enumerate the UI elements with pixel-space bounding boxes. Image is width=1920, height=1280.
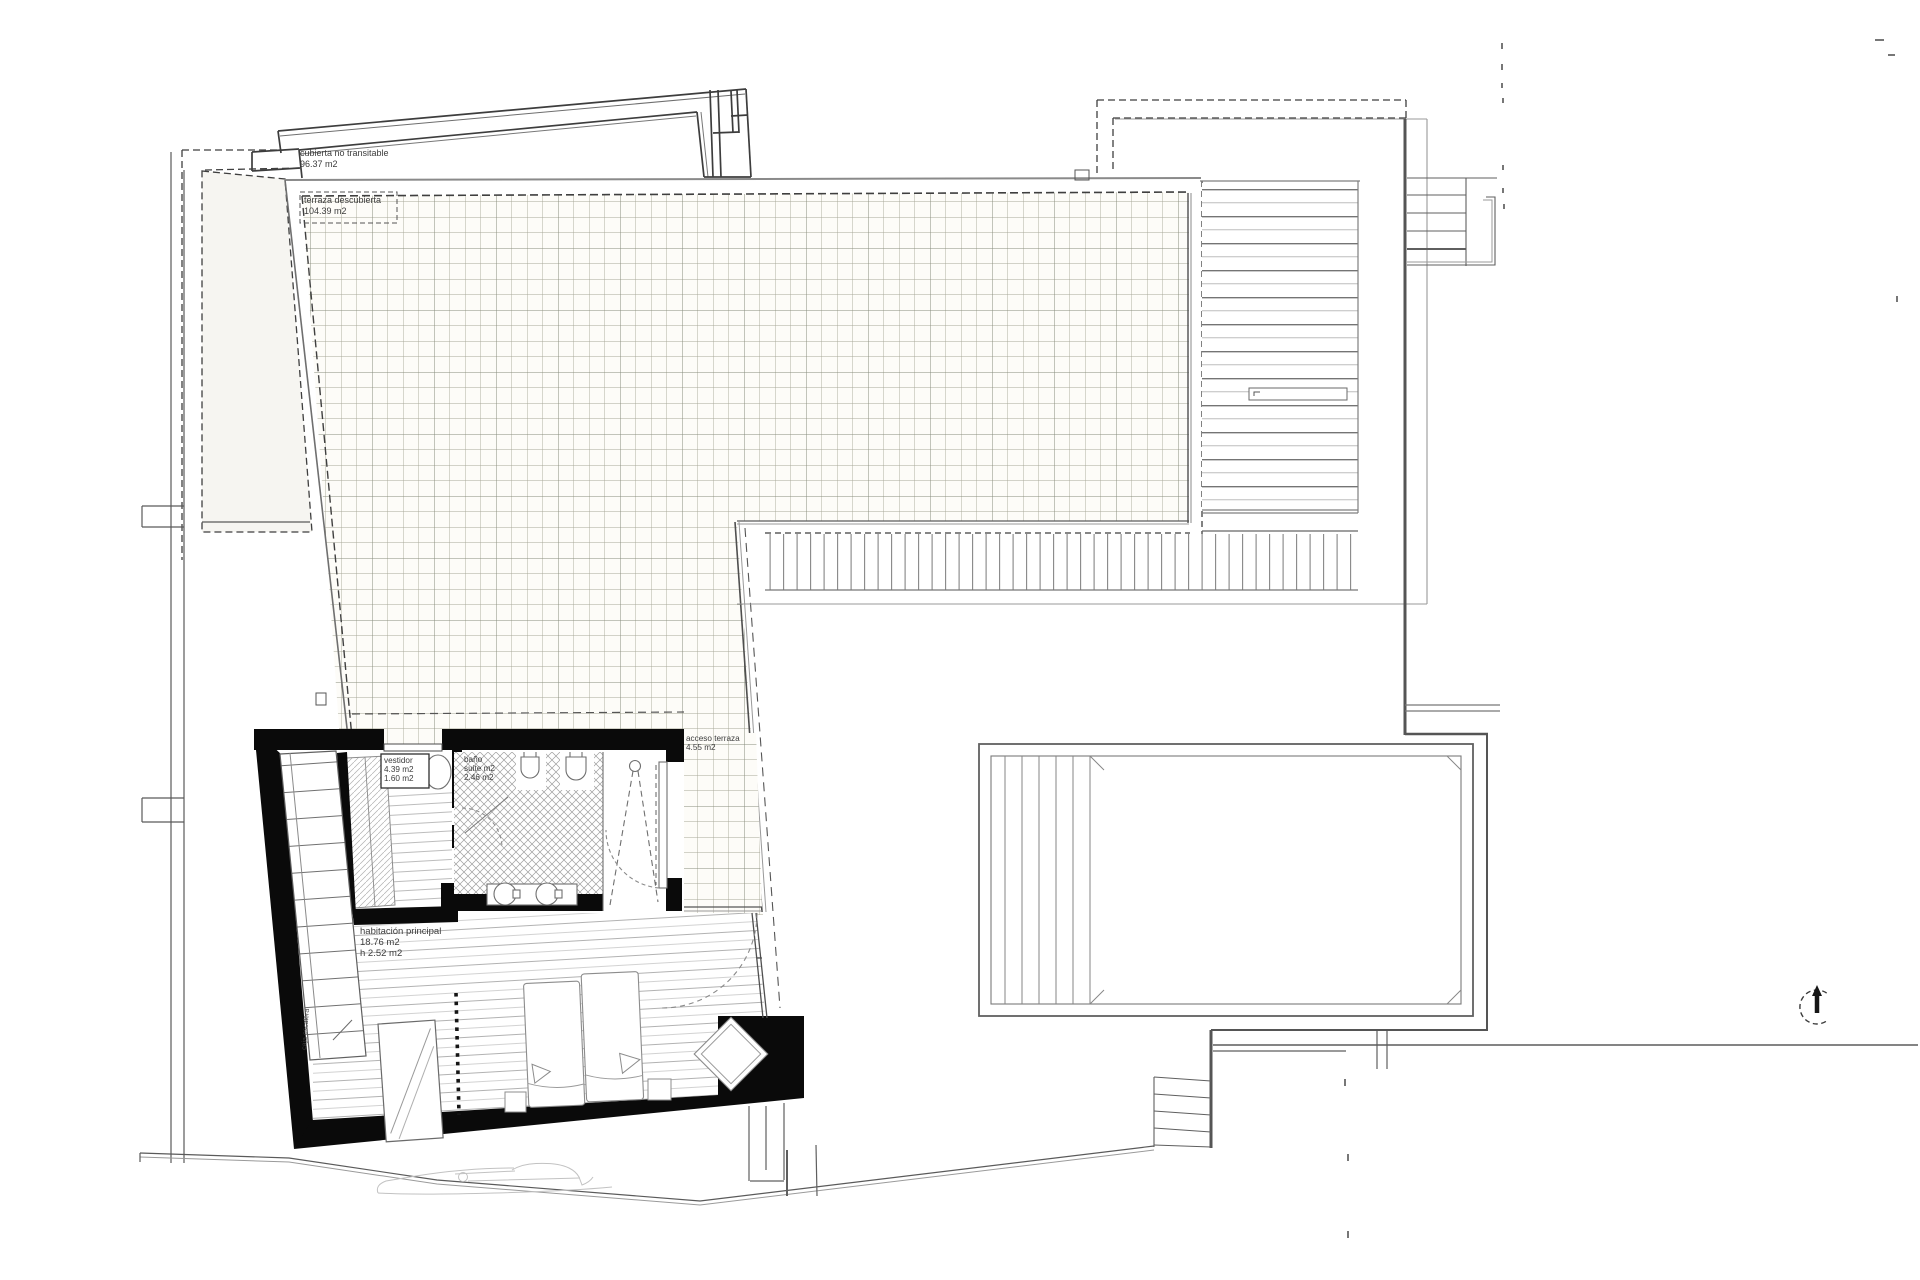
svg-text:4.55 m2: 4.55 m2 — [686, 743, 716, 752]
svg-text:104.39 m2: 104.39 m2 — [304, 206, 347, 216]
svg-text:suite m2: suite m2 — [464, 764, 495, 773]
svg-text:cubierta no transitable: cubierta no transitable — [300, 148, 389, 158]
svg-text:2.46 m2: 2.46 m2 — [464, 773, 494, 782]
svg-text:18.76 m2: 18.76 m2 — [360, 937, 400, 948]
svg-text:habitación principal: habitación principal — [360, 926, 441, 937]
svg-text:1.60 m2: 1.60 m2 — [384, 774, 414, 783]
svg-text:terraza descubierta: terraza descubierta — [304, 195, 381, 205]
svg-text:baño: baño — [464, 755, 483, 764]
svg-text:96.37 m2: 96.37 m2 — [300, 159, 338, 169]
svg-text:h 2.52 m2: h 2.52 m2 — [360, 948, 402, 959]
svg-text:vestidor: vestidor — [384, 756, 413, 765]
svg-text:acceso terraza: acceso terraza — [686, 734, 740, 743]
svg-text:4.39 m2: 4.39 m2 — [384, 765, 414, 774]
